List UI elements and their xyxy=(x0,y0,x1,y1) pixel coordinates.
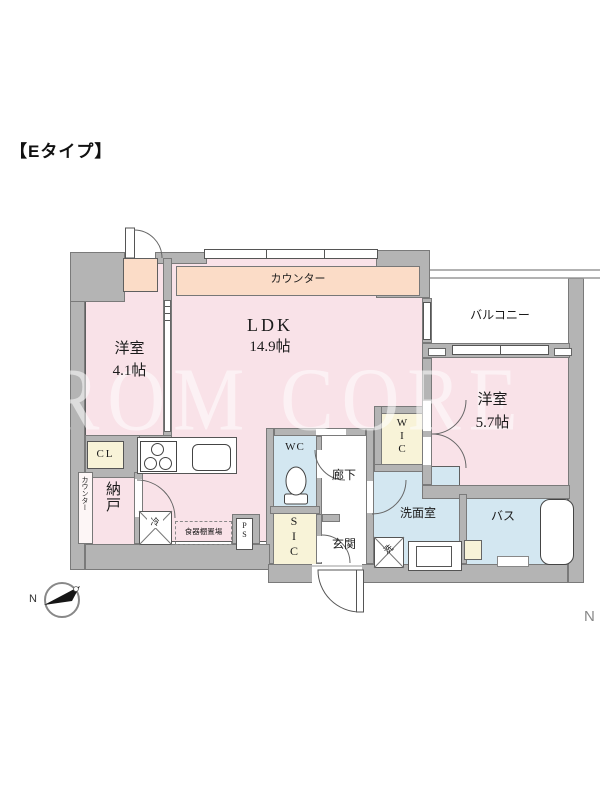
window-mullion xyxy=(500,345,501,355)
wall-pier-inset xyxy=(428,348,446,356)
wall xyxy=(422,485,570,499)
doorway xyxy=(367,481,373,513)
refrigerator-label: 冷 xyxy=(147,518,163,528)
sic-label: SIC xyxy=(288,514,300,559)
floorplan-canvas: 【Eタイプ】 xyxy=(0,0,600,800)
wall xyxy=(322,514,340,522)
wic-label: WIC xyxy=(396,417,407,456)
dish-shelf-label: 食器棚置場 xyxy=(176,528,231,536)
ldk-size: 14.9帖 xyxy=(205,339,335,356)
washroom-label: 洗面室 xyxy=(378,507,458,520)
storage-label: 納戸 xyxy=(104,481,119,513)
window xyxy=(204,249,378,259)
compass-needle-icon xyxy=(44,586,80,605)
entry-step xyxy=(123,258,158,292)
doorway xyxy=(316,429,346,435)
stove-burner-icon xyxy=(144,457,157,470)
bathtub-icon xyxy=(540,499,574,565)
stove-burner-icon xyxy=(159,457,172,470)
bath-label: バス xyxy=(473,510,533,523)
stove-burner-icon xyxy=(151,443,164,456)
entrance-doorway xyxy=(312,564,362,583)
compass-north-label: N xyxy=(29,593,37,605)
doorway xyxy=(423,437,431,465)
sliding-door-hatch xyxy=(165,313,170,314)
wall xyxy=(374,464,424,472)
bath-door-step xyxy=(497,556,529,567)
western2-name: 洋室 xyxy=(455,392,530,409)
wc-label: WC xyxy=(275,441,315,453)
doorway xyxy=(423,401,431,431)
compass-icon xyxy=(45,583,79,617)
sliding-door-hatch xyxy=(165,306,170,307)
page-title: 【Eタイプ】 xyxy=(10,137,112,162)
window-mullion xyxy=(324,249,325,259)
sliding-door-hatch xyxy=(165,320,170,321)
corner-mark: N xyxy=(584,608,595,625)
ps-label: PS xyxy=(240,521,248,539)
wall-pier-inset xyxy=(554,348,572,356)
bath-column xyxy=(464,540,482,560)
vanity-sink-icon xyxy=(416,546,452,567)
balcony-label: バルコニー xyxy=(440,309,560,322)
western1-name: 洋室 xyxy=(92,341,167,358)
compass-dot xyxy=(74,587,79,592)
ldk-name: LDK xyxy=(205,316,335,336)
window xyxy=(423,302,431,340)
wall xyxy=(270,506,320,514)
wall xyxy=(374,406,382,472)
window-mullion xyxy=(266,249,267,259)
door-leaf xyxy=(126,228,135,258)
storage-counter-label: カウンター xyxy=(81,476,88,511)
balcony-railing xyxy=(430,270,600,278)
cl-label: CL xyxy=(87,448,124,460)
entrance-label: 玄関 xyxy=(322,538,366,551)
counter-label: カウンター xyxy=(176,273,420,285)
western2-size: 5.7帖 xyxy=(455,415,530,432)
western1-size: 4.1帖 xyxy=(92,363,167,380)
hallway-label: 廊下 xyxy=(322,469,366,482)
wall xyxy=(70,252,125,302)
kitchen-sink-icon xyxy=(192,444,231,471)
